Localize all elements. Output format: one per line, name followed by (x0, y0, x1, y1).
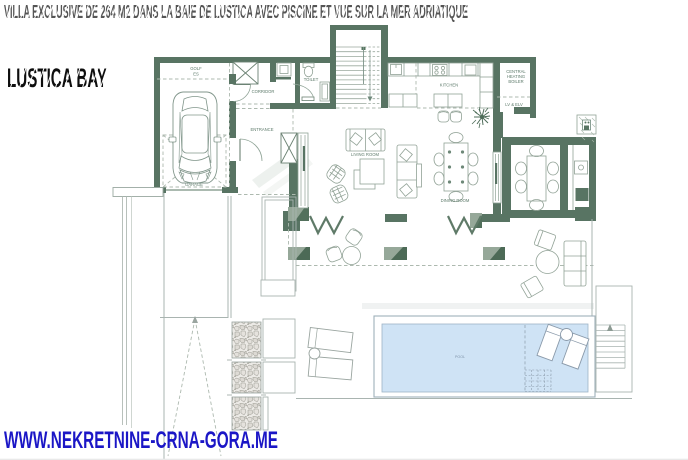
svg-text:WWW.NEKRETNINE-CRNA-GORA.ME: WWW.NEKRETNINE-CRNA-GORA.ME (4, 427, 278, 454)
svg-text:POOL: POOL (455, 355, 465, 359)
svg-text:LIVING ROOM: LIVING ROOM (351, 152, 379, 157)
svg-text:LUSTICA BAY: LUSTICA BAY (7, 63, 107, 93)
svg-text:BOILER: BOILER (508, 79, 523, 84)
svg-text:ES: ES (193, 72, 199, 77)
svg-text:GOLF: GOLF (190, 66, 202, 71)
svg-text:CORRIDOR: CORRIDOR (252, 89, 275, 94)
svg-text:LV & ELV: LV & ELV (505, 102, 523, 107)
svg-text:ENTRANCE: ENTRANCE (250, 127, 273, 132)
svg-text:KITCHEN: KITCHEN (440, 83, 458, 88)
svg-text:DINING ROOM: DINING ROOM (441, 198, 470, 203)
svg-text:TOILET: TOILET (304, 77, 319, 82)
